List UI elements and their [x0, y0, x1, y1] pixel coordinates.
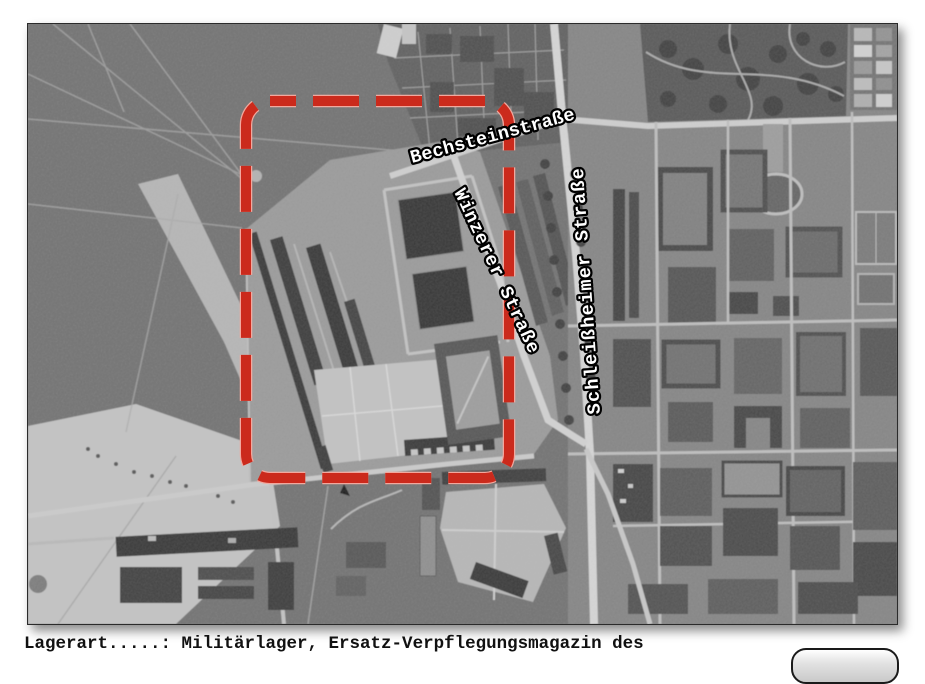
partial-button[interactable]	[791, 648, 899, 684]
caption-lagerart: Lagerart.....: Militärlager, Ersatz-Verp…	[24, 634, 644, 654]
aerial-photo: Bechsteinstraße Winzerer Straße Schleißh…	[27, 23, 898, 625]
film-grain	[28, 24, 897, 624]
aerial-photo-content	[28, 24, 897, 624]
